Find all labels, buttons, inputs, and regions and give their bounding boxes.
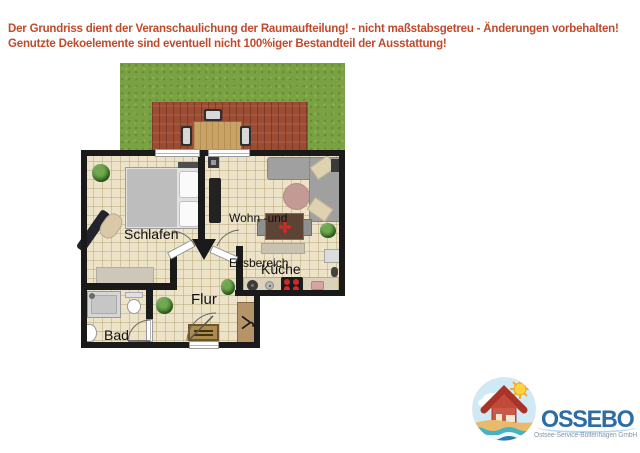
bathroom-door-frame (146, 319, 153, 342)
room-label-wohn: Wohn -und Essbereich (229, 181, 288, 301)
patio-chair (240, 126, 251, 146)
dining-chair (303, 219, 312, 236)
logo-emblem (471, 374, 537, 444)
patio-chair (181, 126, 192, 146)
disclaimer-text: Der Grundriss dient der Veranschaulichun… (8, 22, 640, 52)
bed-mattress (127, 169, 177, 227)
plant-icon (92, 164, 110, 182)
wall (170, 254, 177, 287)
wall (81, 150, 87, 348)
room-label-wohn-line1: Wohn -und (229, 211, 288, 226)
wall (198, 153, 205, 242)
fridge (324, 249, 340, 263)
plant-icon (156, 297, 173, 314)
room-label-bad: Bad (104, 327, 129, 343)
disclaimer-line1: Der Grundriss dient der Veranschaulichun… (8, 22, 640, 37)
wall-lamp-icon (331, 267, 338, 277)
company-logo: OSSEBO Ostsee-Service-Boltenhagen GmbH (471, 374, 640, 449)
tv (209, 178, 221, 223)
wall-unit (208, 157, 219, 168)
terrace-door-living (208, 149, 250, 157)
toilet-tank (125, 292, 143, 298)
plant-icon (320, 223, 336, 238)
patio-chair (204, 109, 222, 121)
disclaimer-line2: Genutzte Dekoelemente sind eventuell nic… (8, 37, 640, 52)
patio-table (193, 121, 242, 152)
doormat (188, 324, 219, 341)
logo-subtitle: Ostsee-Service-Boltenhagen GmbH (534, 432, 637, 439)
logo-name: OSSEBO (541, 406, 634, 434)
bedroom-rug (96, 267, 154, 284)
floorplan-page: Der Grundriss dient der Veranschaulichun… (0, 0, 640, 453)
entrance-door-threshold (189, 341, 219, 349)
wall (146, 290, 153, 321)
wall (81, 283, 177, 290)
shower (87, 291, 121, 318)
bed-pillow (179, 171, 199, 198)
kitchen-item (311, 281, 324, 290)
wall (339, 150, 345, 296)
toilet (127, 299, 141, 314)
bed-pillow (179, 201, 199, 227)
room-label-kueche: Küche (261, 261, 301, 277)
room-label-schlafen: Schlafen (124, 226, 178, 242)
room-label-flur: Flur (191, 291, 217, 308)
terrace-door-bedroom (155, 149, 200, 157)
